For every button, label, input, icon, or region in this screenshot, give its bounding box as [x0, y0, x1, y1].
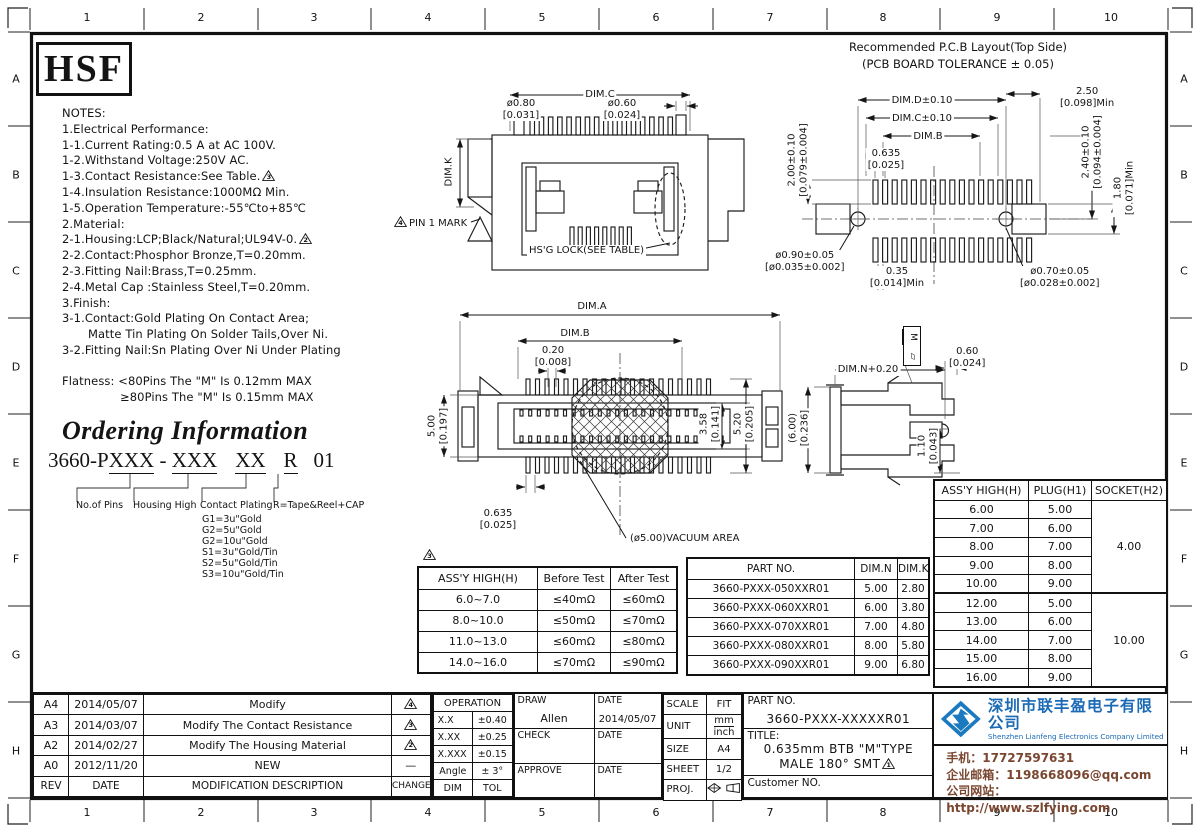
frame-col-8b: 8	[880, 806, 887, 819]
dim-label: 5.00[0.197]	[427, 406, 450, 446]
rev-triangle-2: 2	[299, 233, 312, 244]
notes-block: NOTES: 1.Electrical Performance: 1-1.Cur…	[62, 106, 341, 405]
dim-label: 1.80[0.071]Min	[1113, 159, 1136, 217]
table-row: PROJ.	[663, 780, 742, 800]
table-row: 3660-PXXX-080XXR018.005.80	[687, 637, 929, 656]
pcb-title-2: (PCB BOARD TOLERANCE ± 0.05)	[860, 59, 1056, 71]
drawing-title-block: PART NO. 3660-PXXX-XXXXXR01 TITLE: 0.635…	[744, 694, 934, 797]
ordering-label-packing: R=Tape&Reel+CAP	[273, 500, 364, 511]
table-row: 3660-PXXX-070XXR017.004.80	[687, 617, 929, 636]
company-phone: 手机：17727597631	[946, 750, 1167, 767]
frame-col-1: 1	[84, 11, 91, 24]
frame-col-5b: 5	[539, 806, 546, 819]
dim-label: 2.40±0.10[0.094±0.004]	[1081, 113, 1104, 190]
dim-label: DIM.N+0.20	[836, 364, 901, 376]
frame-col-7: 7	[767, 11, 774, 24]
rev-triangle-3: 3	[262, 170, 275, 181]
check-cell: CHECK	[515, 729, 595, 764]
dim-label: DIM.K	[443, 155, 455, 188]
table-row: SCALEFIT	[663, 695, 742, 715]
ordering-label-pins: No.of Pins	[76, 500, 123, 511]
table-row: 8.0~10.0≤50mΩ≤70mΩ	[418, 610, 677, 631]
table-row: X.XX±0.25	[433, 729, 512, 746]
frame-col-2: 2	[198, 11, 205, 24]
frame-col-7b: 7	[767, 806, 774, 819]
frame-row-h-r: H	[1180, 745, 1188, 758]
dim-label: ø0.90±0.05[ø0.035±0.002]	[763, 250, 847, 273]
flatness-note: Flatness: <80Pins The "M" Is 0.12mm MAX	[62, 374, 341, 390]
table-row: 3660-PXXX-090XXR019.006.80	[687, 656, 929, 675]
table-header-row: ASS'Y HIGH(H) Before Test After Test	[418, 567, 677, 589]
table-header-row: PART NO. DIM.N DIM.K	[687, 558, 929, 579]
hsf-logo: HSF	[36, 42, 132, 96]
table-row: X.XXX±0.15	[433, 746, 512, 763]
frame-row-g-r: G	[1180, 649, 1189, 662]
top-view-drawing	[430, 75, 770, 290]
frame-row-b-r: B	[1180, 169, 1188, 182]
table-row: SHEET1/2	[663, 759, 742, 779]
table-row: DIMTOL	[433, 780, 512, 797]
rev-triangle-1: 1	[882, 758, 895, 769]
table-row: SIZEA4	[663, 739, 742, 759]
table-row: 3660-PXXX-050XXR015.002.80	[687, 579, 929, 598]
frame-col-6: 6	[653, 11, 660, 24]
table-row: X.X±0.40	[433, 712, 512, 729]
company-name-en: Shenzhen Lianfeng Electronics Company Li…	[988, 732, 1167, 741]
dim-label: 0.635[0.025]	[478, 508, 518, 531]
dim-label: DIM.C±0.10	[890, 113, 954, 125]
frame-col-4: 4	[425, 11, 432, 24]
frame-row-d: D	[12, 361, 20, 374]
table-row: 6.005.004.00	[934, 500, 1167, 519]
dim-label: ø0.60[0.024]	[602, 98, 642, 121]
dim-label: 0.635[0.025]	[866, 148, 906, 171]
datasheet-page: 1 2 3 4 5 6 7 8 9 10 1 2 3 4 5 6 7 8 9 1…	[0, 0, 1200, 832]
frame-col-10: 10	[1104, 11, 1118, 24]
frame-row-c-r: C	[1180, 265, 1188, 278]
table-header-row: OPERATION	[433, 695, 512, 712]
drawing-title-line1: 0.635mm BTB "M"TYPE	[744, 742, 932, 756]
pin1-mark-label: 4PIN 1 MARK	[390, 216, 469, 230]
table-header-row: ASS'Y HIGH(H) PLUG(H1) SOCKET(H2)	[934, 480, 1167, 500]
sheet-info-block: SCALEFIT UNITmminch SIZEA4 SHEET1/2 PROJ…	[663, 694, 745, 797]
frame-row-f: F	[13, 553, 19, 566]
approval-block: DRAWAllen DATE2014/05/07 CHECK DATE APPR…	[515, 694, 663, 797]
rev-triangle-4: 4	[394, 216, 407, 227]
ordering-label-plating: Contact Plating	[200, 500, 273, 511]
resistance-table: ASS'Y HIGH(H) Before Test After Test 6.0…	[417, 566, 678, 674]
company-website[interactable]: 公司网站：http://www.szlfying.com	[946, 783, 1167, 816]
table-header-row: REV DATE MODIFICATION DESCRIPTION CHANGE	[34, 776, 431, 796]
frame-col-6b: 6	[653, 806, 660, 819]
frame-col-5: 5	[539, 11, 546, 24]
dim-label: 2.00±0.10[0.079±0.004]	[787, 121, 810, 198]
dim-label: DIM.B	[558, 328, 591, 340]
ordering-label-housing: Housing High	[133, 500, 196, 511]
dim-label: 0.60[0.024]	[947, 346, 987, 369]
dim-label: DIM.B	[911, 131, 944, 143]
draw-cell: DRAWAllen	[515, 694, 595, 729]
approve-date-cell: DATE	[595, 764, 661, 797]
frame-row-f-r: F	[1181, 553, 1187, 566]
rev-triangle: 2	[404, 739, 417, 750]
rev-triangle: 4	[404, 698, 417, 709]
tolerance-table: OPERATION X.X±0.40 X.XX±0.25 X.XXX±0.15 …	[433, 694, 515, 797]
table-row: 3660-PXXX-060XXR016.003.80	[687, 598, 929, 617]
table-row: A0 2012/11/20 NEW —	[34, 756, 431, 776]
frame-col-1b: 1	[84, 806, 91, 819]
dim-label: ø0.70±0.05[ø0.028±0.002]	[1018, 266, 1102, 289]
frame-col-2b: 2	[198, 806, 205, 819]
draw-date-cell: DATE2014/05/07	[595, 694, 661, 729]
rev-triangle: 3	[404, 719, 417, 730]
assembly-height-table: ASS'Y HIGH(H) PLUG(H1) SOCKET(H2) 6.005.…	[933, 479, 1168, 688]
dim-label: 1.10[0.043]	[917, 426, 940, 466]
dim-label: 3.58[0.141]	[699, 404, 722, 444]
dim-label: ø0.80[0.031]	[501, 98, 541, 121]
dim-label: DIM.A	[575, 301, 608, 313]
frame-col-3: 3	[311, 11, 318, 24]
table-row: A2 2014/02/27 Modify The Housing Materia…	[34, 735, 431, 755]
dim-label: 0.35[0.014]Min	[868, 266, 926, 289]
revision-table: A4 2014/05/07 Modify 4 A3 2014/03/07 Mod…	[33, 694, 433, 797]
table-row: 6.0~7.0≤40mΩ≤60mΩ	[418, 589, 677, 610]
frame-col-4b: 4	[425, 806, 432, 819]
company-logo	[940, 698, 982, 740]
company-block: 深圳市联丰盈电子有限公司 Shenzhen Lianfeng Electroni…	[934, 694, 1167, 797]
hsg-lock-label: HS'G LOCK(SEE TABLE)	[527, 245, 646, 257]
dim-label: (6.00)[0.236]	[788, 408, 811, 448]
table-row: 14.0~16.0≤70mΩ≤90mΩ	[418, 652, 677, 673]
table-row: 11.0~13.0≤60mΩ≤80mΩ	[418, 631, 677, 652]
frame-row-e: E	[13, 457, 20, 470]
table-row: UNITmminch	[663, 715, 742, 739]
title-block: A4 2014/05/07 Modify 4 A3 2014/03/07 Mod…	[33, 692, 1167, 797]
dim-label: 5.20[0.205]	[733, 404, 756, 444]
approve-cell: APPROVE	[515, 764, 595, 797]
part-number: 3660-PXXX-XXXXXR01	[744, 712, 932, 726]
rev-triangle-3: 3	[423, 549, 436, 560]
frame-row-d-r: D	[1180, 361, 1188, 374]
check-date-cell: DATE	[595, 729, 661, 764]
plating-options: G1=3u"Gold G2=5u"Gold G2=10u"Gold S1=3u"…	[202, 514, 284, 580]
frame-row-g: G	[12, 649, 21, 662]
dim-label: 2.50[0.098]Min	[1058, 86, 1116, 109]
frame-col-9: 9	[994, 11, 1001, 24]
company-name-cn: 深圳市联丰盈电子有限公司	[988, 698, 1167, 732]
frame-row-c: C	[12, 265, 20, 278]
frame-row-e-r: E	[1181, 457, 1188, 470]
frame-col-3b: 3	[311, 806, 318, 819]
table-row: 12.005.0010.00	[934, 593, 1167, 612]
ordering-title: Ordering Information	[62, 416, 308, 446]
projection-symbol	[707, 782, 742, 794]
drawing-title-line2: MALE 180° SMT1	[744, 757, 932, 771]
frame-row-b: B	[12, 169, 20, 182]
vacuum-area-label: (ø5.00)VACUUM AREA	[628, 533, 741, 545]
ordering-part-number: 3660-PXXX - XXXXXR01	[48, 448, 335, 473]
frame-row-a-r: A	[1180, 73, 1188, 86]
frame-row-h: H	[12, 745, 20, 758]
dim-label: 0.20[0.008]	[533, 345, 573, 368]
part-number-table: PART NO. DIM.N DIM.K 3660-PXXX-050XXR015…	[686, 557, 930, 676]
pcb-title-1: Recommended P.C.B Layout(Top Side)	[847, 42, 1069, 54]
frame-col-8: 8	[880, 11, 887, 24]
table-row: Angle± 3°	[433, 763, 512, 780]
frame-row-a: A	[12, 73, 20, 86]
dim-label: DIM.D±0.10	[890, 95, 955, 107]
table-row: A3 2014/03/07 Modify The Contact Resista…	[34, 715, 431, 735]
table-row: A4 2014/05/07 Modify 4	[34, 695, 431, 715]
resistance-table-marker: 3	[419, 549, 440, 563]
flatness-symbol: M ▱	[903, 326, 921, 366]
company-email: 企业邮箱：1198668096@qq.com	[946, 767, 1167, 784]
